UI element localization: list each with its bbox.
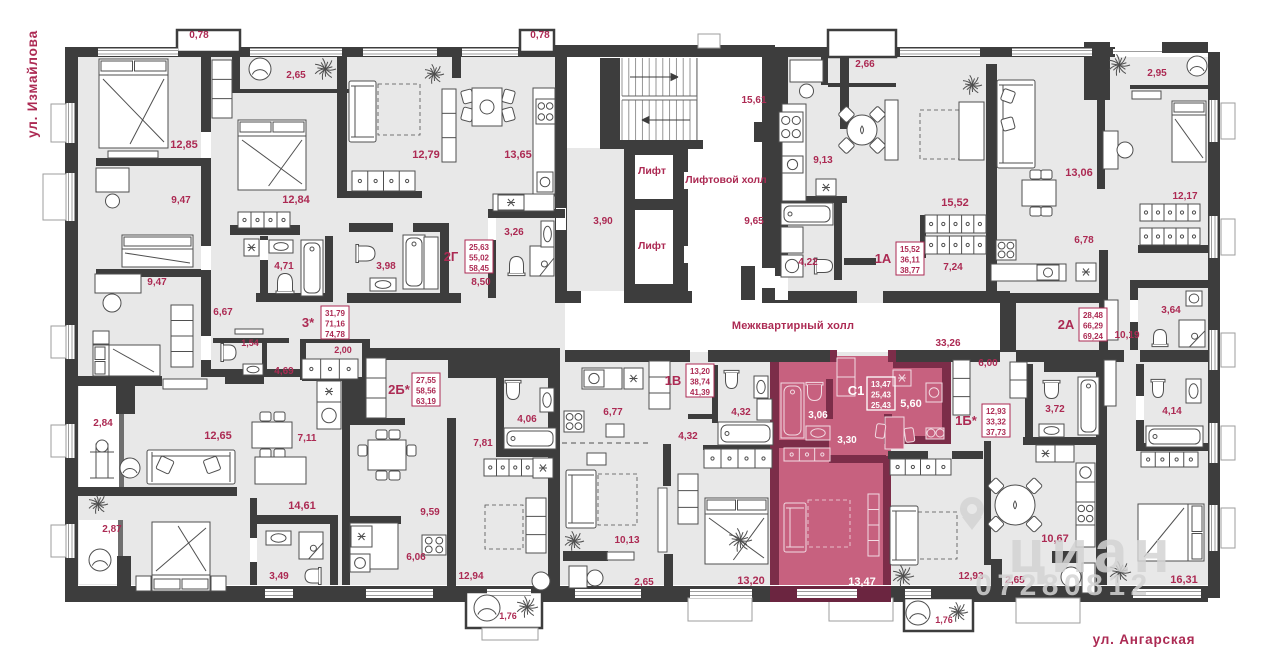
svg-text:37,73: 37,73 bbox=[986, 428, 1007, 437]
svg-text:2Б*: 2Б* bbox=[388, 382, 411, 397]
svg-text:1,76: 1,76 bbox=[935, 615, 953, 625]
svg-text:12,93: 12,93 bbox=[986, 407, 1007, 416]
svg-text:12,17: 12,17 bbox=[1172, 191, 1197, 202]
svg-text:4,32: 4,32 bbox=[678, 431, 698, 442]
svg-text:2,87: 2,87 bbox=[102, 524, 122, 535]
svg-text:3,72: 3,72 bbox=[1045, 404, 1065, 415]
svg-text:6,78: 6,78 bbox=[1074, 235, 1094, 246]
svg-text:13,20: 13,20 bbox=[690, 367, 711, 376]
svg-text:3*: 3* bbox=[302, 315, 315, 330]
svg-text:2,95: 2,95 bbox=[1147, 68, 1167, 79]
svg-text:6,00: 6,00 bbox=[978, 358, 998, 369]
svg-text:63,19: 63,19 bbox=[416, 397, 437, 406]
svg-text:2А: 2А bbox=[1058, 317, 1075, 332]
svg-text:38,74: 38,74 bbox=[690, 378, 711, 387]
svg-text:ул. Измайлова: ул. Измайлова bbox=[25, 30, 40, 138]
svg-text:41,39: 41,39 bbox=[690, 388, 711, 397]
svg-text:1,76: 1,76 bbox=[499, 611, 517, 621]
svg-text:66,29: 66,29 bbox=[1083, 322, 1104, 331]
svg-text:3,26: 3,26 bbox=[504, 227, 524, 238]
svg-text:2,65: 2,65 bbox=[286, 70, 306, 81]
svg-text:13,20: 13,20 bbox=[737, 575, 765, 587]
svg-text:2Г: 2Г bbox=[444, 249, 459, 264]
svg-text:ул. Ангарская: ул. Ангарская bbox=[1093, 632, 1196, 647]
svg-text:4,22: 4,22 bbox=[798, 257, 818, 268]
svg-text:Межквартирный холл: Межквартирный холл bbox=[732, 320, 854, 332]
svg-text:55,02: 55,02 bbox=[469, 254, 490, 263]
svg-text:33,32: 33,32 bbox=[986, 418, 1007, 427]
svg-text:9,47: 9,47 bbox=[171, 195, 191, 206]
svg-text:15,61: 15,61 bbox=[741, 95, 766, 106]
svg-text:38,77: 38,77 bbox=[900, 266, 921, 275]
svg-text:13,47: 13,47 bbox=[848, 576, 876, 588]
svg-text:4,32: 4,32 bbox=[731, 407, 751, 418]
svg-text:6,67: 6,67 bbox=[213, 307, 233, 318]
svg-text:27,55: 27,55 bbox=[416, 376, 437, 385]
svg-text:0,78: 0,78 bbox=[189, 30, 209, 41]
svg-text:25,43: 25,43 bbox=[871, 391, 892, 400]
svg-text:9,65: 9,65 bbox=[744, 216, 764, 227]
svg-text:10,13: 10,13 bbox=[614, 535, 639, 546]
svg-text:28,48: 28,48 bbox=[1083, 311, 1104, 320]
svg-text:7,24: 7,24 bbox=[943, 262, 963, 273]
svg-text:31,79: 31,79 bbox=[325, 309, 346, 318]
svg-text:1,54: 1,54 bbox=[241, 338, 259, 348]
svg-text:13,06: 13,06 bbox=[1065, 167, 1093, 179]
svg-text:5,60: 5,60 bbox=[900, 398, 921, 410]
svg-text:4,71: 4,71 bbox=[274, 261, 294, 272]
svg-text:9,59: 9,59 bbox=[420, 507, 440, 518]
svg-text:25,43: 25,43 bbox=[871, 401, 892, 410]
svg-text:58,56: 58,56 bbox=[416, 387, 437, 396]
svg-text:8,50: 8,50 bbox=[471, 277, 491, 288]
svg-text:0,78: 0,78 bbox=[530, 30, 550, 41]
svg-text:6,06: 6,06 bbox=[406, 552, 426, 563]
svg-text:74,78: 74,78 bbox=[325, 330, 346, 339]
svg-text:12,84: 12,84 bbox=[282, 194, 310, 206]
svg-text:3,49: 3,49 bbox=[269, 571, 289, 582]
svg-text:12,79: 12,79 bbox=[412, 149, 440, 161]
svg-text:14,61: 14,61 bbox=[288, 500, 316, 512]
svg-text:1А: 1А bbox=[875, 251, 892, 266]
svg-text:7,11: 7,11 bbox=[298, 433, 317, 444]
svg-text:3,30: 3,30 bbox=[837, 435, 857, 446]
svg-text:7,81: 7,81 bbox=[473, 438, 493, 449]
svg-text:13,65: 13,65 bbox=[504, 149, 532, 161]
svg-text:15,52: 15,52 bbox=[941, 197, 969, 209]
svg-text:4,69: 4,69 bbox=[274, 366, 294, 377]
svg-text:2,66: 2,66 bbox=[855, 59, 875, 70]
svg-text:3,64: 3,64 bbox=[1161, 305, 1181, 316]
svg-text:4,06: 4,06 bbox=[517, 414, 537, 425]
svg-text:25,63: 25,63 bbox=[469, 243, 490, 252]
svg-text:Лифтовой холл: Лифтовой холл bbox=[685, 174, 766, 186]
svg-text:9,47: 9,47 bbox=[147, 277, 167, 288]
svg-text:12,65: 12,65 bbox=[204, 430, 232, 442]
svg-text:12,85: 12,85 bbox=[170, 139, 198, 151]
svg-text:Лифт: Лифт bbox=[638, 240, 666, 252]
svg-text:07280812: 07280812 bbox=[975, 569, 1152, 602]
svg-text:15,52: 15,52 bbox=[900, 245, 921, 254]
svg-text:3,06: 3,06 bbox=[808, 410, 828, 421]
svg-text:69,24: 69,24 bbox=[1083, 332, 1104, 341]
svg-text:12,94: 12,94 bbox=[458, 571, 483, 582]
svg-text:Лифт: Лифт bbox=[638, 165, 666, 177]
svg-text:71,16: 71,16 bbox=[325, 320, 346, 329]
svg-text:3,98: 3,98 bbox=[376, 261, 396, 272]
svg-text:33,26: 33,26 bbox=[935, 338, 960, 349]
svg-text:2,84: 2,84 bbox=[93, 418, 113, 429]
svg-text:3,90: 3,90 bbox=[593, 216, 613, 227]
svg-text:2,00: 2,00 bbox=[334, 345, 352, 355]
svg-text:36,11: 36,11 bbox=[900, 256, 920, 265]
svg-text:10,19: 10,19 bbox=[1114, 330, 1139, 341]
svg-text:1В: 1В bbox=[665, 373, 682, 388]
svg-text:13,47: 13,47 bbox=[871, 380, 892, 389]
svg-text:2,65: 2,65 bbox=[634, 577, 654, 588]
svg-text:6,77: 6,77 bbox=[603, 407, 623, 418]
svg-text:С1: С1 bbox=[848, 383, 865, 398]
svg-text:1Б*: 1Б* bbox=[955, 413, 978, 428]
svg-text:58,45: 58,45 bbox=[469, 264, 490, 273]
svg-text:4,14: 4,14 bbox=[1162, 406, 1182, 417]
svg-text:9,13: 9,13 bbox=[813, 155, 833, 166]
